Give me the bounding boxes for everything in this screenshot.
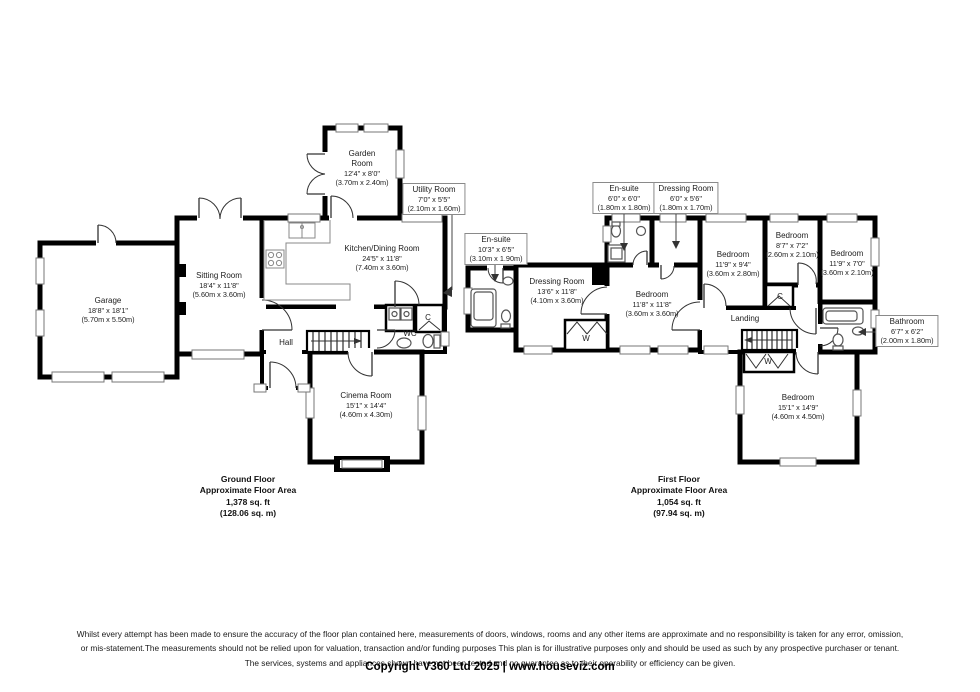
room-dims-ft: 24'5" x 11'8" <box>344 254 419 263</box>
dressing-room-large-label: Dressing Room 13'6" x 11'8" (4.10m x 3.6… <box>529 277 584 305</box>
room-name: En-suite <box>597 184 650 194</box>
room-name: Landing <box>731 314 759 324</box>
landing-label: Landing <box>731 314 759 324</box>
room-name: WC <box>403 329 416 339</box>
room-name: C <box>425 313 431 323</box>
garage-label: Garage 18'8" x 18'1" (5.70m x 5.50m) <box>81 296 134 324</box>
bedroom-4-label: Bedroom 11'9" x 7'0" (3.60m x 2.10m) <box>820 249 873 277</box>
room-dims-ft: 15'1" x 14'4" <box>339 401 392 410</box>
copyright-text: Copyright V360 Ltd 2025 | www.houseviz.c… <box>0 661 980 673</box>
room-name: Bedroom <box>820 249 873 259</box>
room-dims-m: (5.70m x 5.50m) <box>81 315 134 324</box>
room-dims-m: (3.10m x 1.90m) <box>469 254 522 263</box>
room-name: W <box>582 334 590 344</box>
cinema-room-label: Cinema Room 15'1" x 14'4" (4.60m x 4.30m… <box>339 391 392 419</box>
bedroom-5-label: Bedroom 15'1" x 14'9" (4.60m x 4.50m) <box>771 393 824 421</box>
cupboard-label-first: C <box>777 292 783 302</box>
garden-room-label: Garden Room 12'4" x 8'0" (3.70m x 2.40m) <box>339 149 385 187</box>
room-dims-m: (3.60m x 3.60m) <box>625 309 678 318</box>
room-dims-m: (7.40m x 3.60m) <box>344 263 419 272</box>
en-suite-large-label: En-suite 10'3" x 6'5" (3.10m x 1.90m) <box>464 233 527 265</box>
room-dims-ft: 6'0" x 5'6" <box>658 194 713 203</box>
room-dims-ft: 11'9" x 7'0" <box>820 259 873 268</box>
room-dims-ft: 10'3" x 6'5" <box>469 245 522 254</box>
room-dims-m: (2.60m x 2.10m) <box>765 250 818 259</box>
room-dims-ft: 18'4" x 11'8" <box>192 281 245 290</box>
room-dims-ft: 13'6" x 11'8" <box>529 287 584 296</box>
room-name: Utility Room <box>407 185 460 195</box>
room-dims-m: (3.60m x 2.80m) <box>706 269 759 278</box>
floorplan-page: Garage 18'8" x 18'1" (5.70m x 5.50m) Sit… <box>0 0 980 692</box>
room-dims-m: (4.60m x 4.50m) <box>771 412 824 421</box>
floorplan-graphics <box>0 0 980 692</box>
wardrobe-label-bedroom: W <box>764 357 772 367</box>
room-name: Bedroom <box>771 393 824 403</box>
bedroom-3-label: Bedroom 8'7" x 7'2" (2.60m x 2.10m) <box>765 231 818 259</box>
wc-label: WC <box>403 329 416 339</box>
room-dims-ft: 15'1" x 14'9" <box>771 403 824 412</box>
room-name: Hall <box>279 338 293 348</box>
hall-label: Hall <box>279 338 293 348</box>
first-floor-title: First Floor Approximate Floor Area 1,054… <box>631 474 728 519</box>
room-name: Cinema Room <box>339 391 392 401</box>
room-name: Dressing Room <box>529 277 584 287</box>
room-dims-ft: 12'4" x 8'0" <box>344 169 380 178</box>
floor-name: First Floor <box>631 474 728 485</box>
room-name: W <box>764 357 772 367</box>
floor-area-ft: 1,378 sq. ft <box>200 497 297 508</box>
bathroom-label: Bathroom 6'7" x 6'2" (2.00m x 1.80m) <box>875 315 938 347</box>
floor-name: Ground Floor <box>200 474 297 485</box>
en-suite-small-label: En-suite 6'0" x 6'0" (1.80m x 1.80m) <box>592 182 655 214</box>
room-dims-ft: 7'0" x 5'5" <box>407 195 460 204</box>
room-dims-m: (5.60m x 3.60m) <box>192 290 245 299</box>
bedroom-2-label: Bedroom 11'9" x 9'4" (3.60m x 2.80m) <box>706 250 759 278</box>
room-name: Garage <box>81 296 134 306</box>
room-name: Bathroom <box>880 317 933 327</box>
floor-area-m: (128.06 sq. m) <box>200 508 297 519</box>
room-dims-m: (4.60m x 4.30m) <box>339 410 392 419</box>
room-dims-ft: 8'7" x 7'2" <box>765 241 818 250</box>
room-dims-m: (1.80m x 1.80m) <box>597 203 650 212</box>
room-dims-ft: 11'8" x 11'8" <box>625 300 678 309</box>
ground-floor-title: Ground Floor Approximate Floor Area 1,37… <box>200 474 297 519</box>
floor-subtitle: Approximate Floor Area <box>631 485 728 496</box>
room-dims-m: (1.80m x 1.70m) <box>658 203 713 212</box>
room-name: Bedroom <box>706 250 759 260</box>
room-name: Sitting Room <box>192 271 245 281</box>
room-name: Bedroom <box>765 231 818 241</box>
room-dims-m: (3.70m x 2.40m) <box>335 178 388 187</box>
dressing-room-small-label: Dressing Room 6'0" x 5'6" (1.80m x 1.70m… <box>653 182 718 214</box>
room-name: C <box>777 292 783 302</box>
room-dims-ft: 18'8" x 18'1" <box>81 306 134 315</box>
room-name: Garden Room <box>339 149 385 169</box>
floor-area-ft: 1,054 sq. ft <box>631 497 728 508</box>
utility-room-label: Utility Room 7'0" x 5'5" (2.10m x 1.60m) <box>402 183 465 215</box>
sitting-room-label: Sitting Room 18'4" x 11'8" (5.60m x 3.60… <box>192 271 245 299</box>
room-dims-m: (4.10m x 3.60m) <box>529 296 584 305</box>
cupboard-label-ground: C <box>425 313 431 323</box>
bedroom-1-label: Bedroom 11'8" x 11'8" (3.60m x 3.60m) <box>625 290 678 318</box>
room-dims-m: (2.10m x 1.60m) <box>407 204 460 213</box>
room-name: Dressing Room <box>658 184 713 194</box>
floor-subtitle: Approximate Floor Area <box>200 485 297 496</box>
disclaimer-line-1: Whilst every attempt has been made to en… <box>0 627 980 641</box>
room-name: En-suite <box>469 235 522 245</box>
floor-area-m: (97.94 sq. m) <box>631 508 728 519</box>
room-dims-ft: 11'9" x 9'4" <box>706 260 759 269</box>
room-dims-m: (2.00m x 1.80m) <box>880 336 933 345</box>
room-name: Bedroom <box>625 290 678 300</box>
wardrobe-label-dressing: W <box>582 334 590 344</box>
first-stairs <box>742 330 797 350</box>
room-name: Kitchen/Dining Room <box>344 244 419 254</box>
disclaimer-line-2: or mis-statement.The measurements should… <box>0 641 980 655</box>
room-dims-m: (3.60m x 2.10m) <box>820 268 873 277</box>
room-dims-ft: 6'7" x 6'2" <box>880 327 933 336</box>
kitchen-dining-label: Kitchen/Dining Room 24'5" x 11'8" (7.40m… <box>344 244 419 272</box>
room-dims-ft: 6'0" x 6'0" <box>597 194 650 203</box>
